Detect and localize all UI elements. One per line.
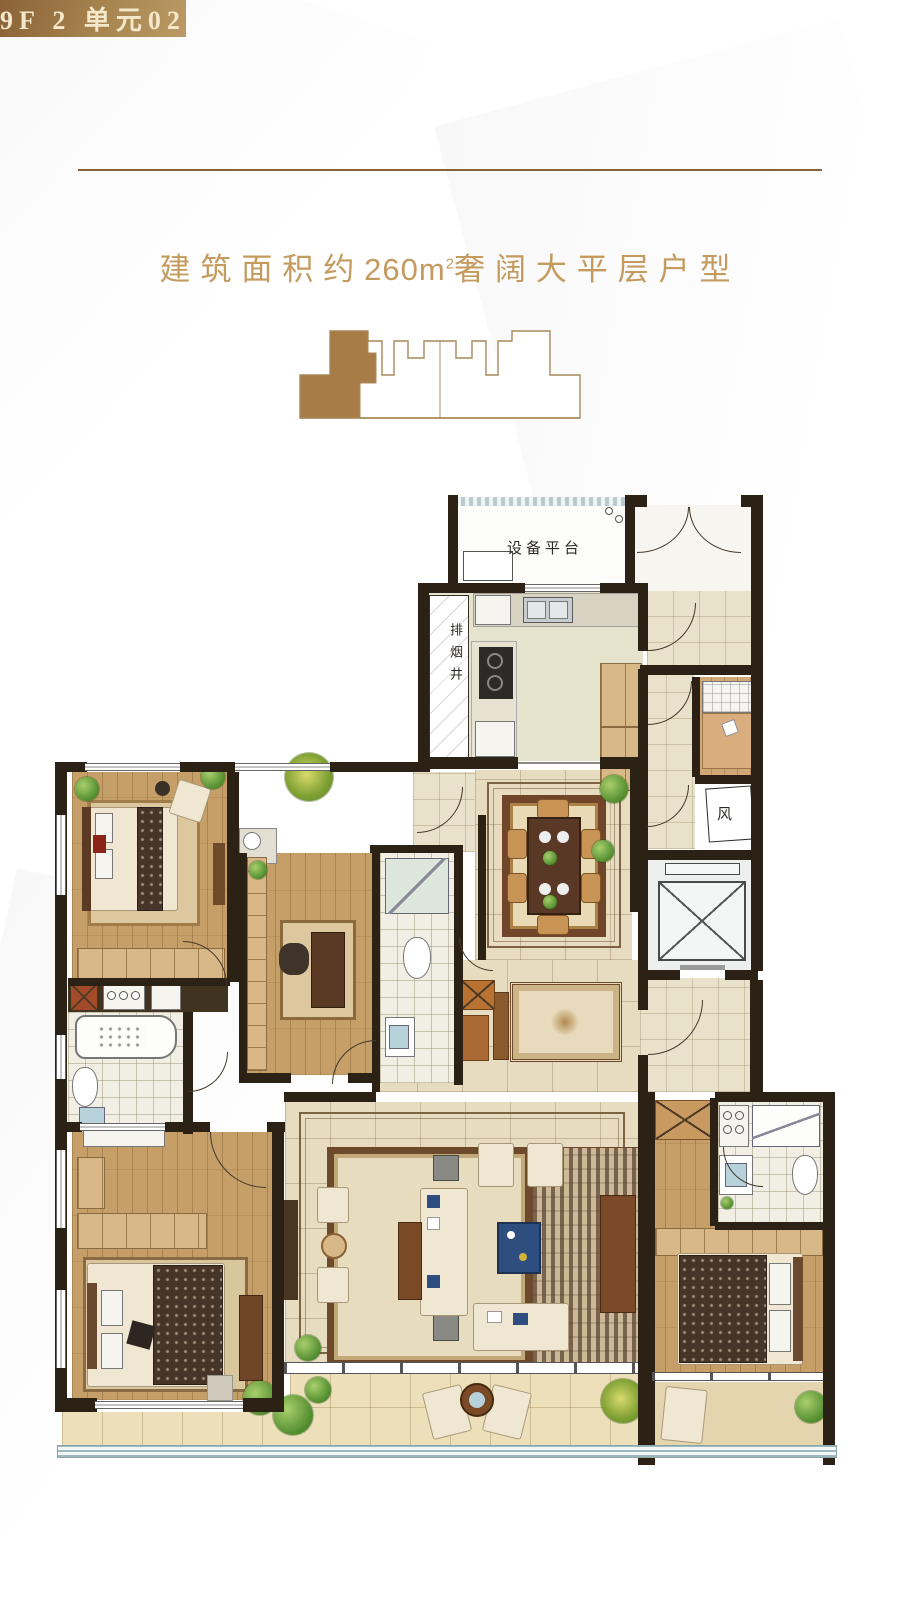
bed-runner [137, 807, 163, 911]
wall [55, 1122, 82, 1132]
washer-knob [735, 1125, 744, 1134]
balcony-table-top [469, 1392, 485, 1408]
dining-chair [581, 873, 601, 903]
building-keyplan [290, 313, 590, 423]
place-setting [557, 883, 569, 895]
wall [227, 772, 239, 982]
area-value: 260 [364, 252, 419, 287]
balcony-master [62, 1412, 292, 1448]
wall [640, 970, 680, 980]
desk-chair [279, 943, 309, 975]
wall [750, 980, 763, 1092]
wall [710, 1098, 718, 1226]
bedroom-window [85, 763, 180, 771]
label-smoke-exhaust-shaft: 排烟井 [435, 623, 465, 735]
sofa-pillow [513, 1313, 528, 1325]
wall [418, 583, 525, 593]
area-subtitle-suffix: 奢阔大平层户型 [454, 252, 740, 287]
wall [715, 1092, 835, 1102]
vent-icon [615, 515, 623, 523]
kitchen-cabinet [475, 721, 515, 757]
speaker [433, 1315, 459, 1341]
wall [638, 1092, 655, 1465]
toilet [72, 1067, 98, 1107]
wall [370, 845, 462, 853]
fridge [475, 595, 511, 625]
wall [330, 762, 430, 772]
bed-bench [239, 1295, 263, 1381]
wall [692, 677, 700, 777]
side-window [56, 815, 66, 895]
equipment-platform-louver [453, 497, 633, 506]
hall-rug-medallion [551, 1009, 579, 1035]
washer [243, 832, 261, 850]
hall-console [493, 992, 509, 1060]
wall [239, 853, 247, 1075]
vent-icon [605, 507, 613, 515]
wall [638, 1092, 655, 1102]
area-unit: m [419, 252, 446, 287]
kitchen-sink-basin [549, 601, 568, 619]
bed-duvet [679, 1255, 767, 1363]
label-wind-shaft: 风 [717, 803, 732, 824]
plant [592, 840, 614, 862]
kitchen-sink-basin [527, 601, 546, 619]
sofa-pillow [427, 1275, 440, 1288]
stove-burner [487, 675, 503, 691]
tv-console [284, 1200, 298, 1300]
washer-knob [119, 991, 128, 1000]
side-window [56, 1150, 66, 1228]
area-subtitle-prefix: 建筑面积约 [160, 252, 365, 287]
shelf-row [655, 1228, 823, 1256]
bed-cushion [93, 835, 106, 853]
wall [695, 775, 760, 784]
bedroom-window-wall [652, 1372, 823, 1381]
wall [239, 1073, 291, 1083]
sofa-pillow [487, 1311, 502, 1323]
side-table-round [321, 1233, 347, 1259]
bed-headboard [82, 807, 91, 911]
table-decor [519, 1253, 527, 1261]
lounge-chair [660, 1386, 707, 1444]
stool [155, 781, 170, 796]
table-decor [507, 1231, 515, 1239]
wardrobe-x [655, 1100, 715, 1140]
bed-maid-pillow-end [702, 681, 756, 713]
coffee-table-wood [398, 1222, 422, 1300]
plant [249, 861, 267, 879]
wall [448, 495, 458, 593]
balcony-railing [57, 1445, 837, 1458]
wall [823, 1092, 835, 1465]
sofa-pillow [427, 1195, 440, 1208]
wardrobe [77, 1157, 105, 1209]
shoe-cabinet [461, 980, 495, 1010]
dining-chair [537, 915, 569, 935]
floor-plan: 设备平台 排烟井 风 [55, 495, 845, 1470]
bed-pillow [101, 1290, 123, 1326]
toilet [792, 1155, 818, 1195]
kitchen-window [525, 584, 600, 592]
door-arc [188, 1052, 228, 1092]
side-window [56, 1290, 66, 1368]
sideboard [600, 1195, 636, 1313]
plant [75, 777, 99, 801]
wall [284, 1092, 376, 1102]
bed-pillow [769, 1310, 791, 1352]
hall-cabinet [459, 1015, 489, 1061]
master-bay-window [80, 1123, 165, 1131]
wall [638, 591, 648, 651]
place-setting [539, 831, 551, 843]
wall [625, 495, 647, 507]
armchair [317, 1187, 349, 1223]
unit-banner-label: 9F 2 单元02 [0, 0, 186, 37]
dining-chair [507, 829, 527, 859]
shower-glass [752, 1105, 820, 1147]
label-equipment-platform: 设备平台 [475, 537, 615, 558]
dining-chair [507, 873, 527, 903]
side-window [56, 1035, 66, 1079]
living-window-wall [284, 1362, 638, 1374]
bed-headboard [793, 1257, 803, 1361]
stove-burner [487, 653, 503, 669]
bedroom-window [235, 763, 330, 771]
sofa-pillow [427, 1217, 440, 1230]
plant [305, 1377, 331, 1403]
wall [165, 1122, 210, 1132]
area-subtitle: 建筑面积约260m2奢阔大平层户型 [0, 244, 900, 289]
plant [721, 1197, 733, 1209]
wall [454, 845, 463, 1085]
sink-basin [389, 1025, 409, 1049]
floor-mat [207, 1375, 233, 1401]
desk [311, 932, 345, 1008]
wall [630, 762, 642, 912]
threshold [518, 762, 600, 764]
wall [640, 665, 760, 675]
wall [715, 1222, 835, 1230]
armchair [317, 1267, 349, 1303]
wall [638, 980, 648, 1010]
wall [640, 850, 760, 860]
speaker [433, 1155, 459, 1181]
bed-pillow [95, 849, 113, 879]
coffee-table-blue [497, 1222, 541, 1274]
shower-glass [385, 858, 449, 914]
elevator-counterweight [665, 863, 740, 875]
master-window [95, 1401, 245, 1409]
palm-plant [285, 753, 333, 801]
wall [272, 1132, 284, 1400]
dining-chair [537, 799, 569, 819]
wall [55, 1398, 97, 1412]
wall [638, 1055, 648, 1092]
pantry-cabinet [600, 663, 642, 727]
place-setting [557, 831, 569, 843]
bed-pillow [769, 1263, 791, 1305]
area-unit-exponent: 2 [446, 256, 454, 273]
bed-duvet [153, 1265, 223, 1385]
washer-knob [131, 991, 140, 1000]
unit-banner: 9F 2 单元02 [0, 0, 186, 37]
plant [295, 1335, 321, 1361]
elevator-door [680, 965, 725, 970]
wall [751, 503, 763, 591]
washer-knob [723, 1125, 732, 1134]
floorplan-page: 9F 2 单元02 建筑面积约260m2奢阔大平层户型 [0, 0, 900, 1600]
wall [180, 762, 235, 772]
wall [418, 583, 429, 761]
armchair [527, 1143, 563, 1187]
plant [543, 851, 557, 865]
header-rule-line [78, 169, 822, 171]
bed-pillow [101, 1333, 123, 1369]
plant [543, 895, 557, 909]
washer-knob [723, 1111, 732, 1120]
bathtub-jets [97, 1025, 145, 1049]
wall [267, 1122, 285, 1132]
plant [600, 775, 628, 803]
washer-knob [107, 991, 116, 1000]
bookshelf [247, 857, 267, 1071]
appliance [151, 984, 181, 1010]
bed-headboard [87, 1283, 97, 1369]
closet-row [77, 1213, 207, 1249]
wall [418, 757, 518, 769]
tall-cabinet [213, 843, 225, 905]
cabinet-x [71, 984, 97, 1010]
toilet [403, 937, 431, 979]
wall [600, 757, 642, 769]
washer-knob [735, 1111, 744, 1120]
wall [243, 1398, 284, 1412]
place-setting [539, 883, 551, 895]
wall [725, 970, 758, 980]
armchair [478, 1143, 514, 1187]
elevator-car [658, 881, 746, 961]
wall [625, 495, 635, 593]
wall [55, 762, 87, 772]
